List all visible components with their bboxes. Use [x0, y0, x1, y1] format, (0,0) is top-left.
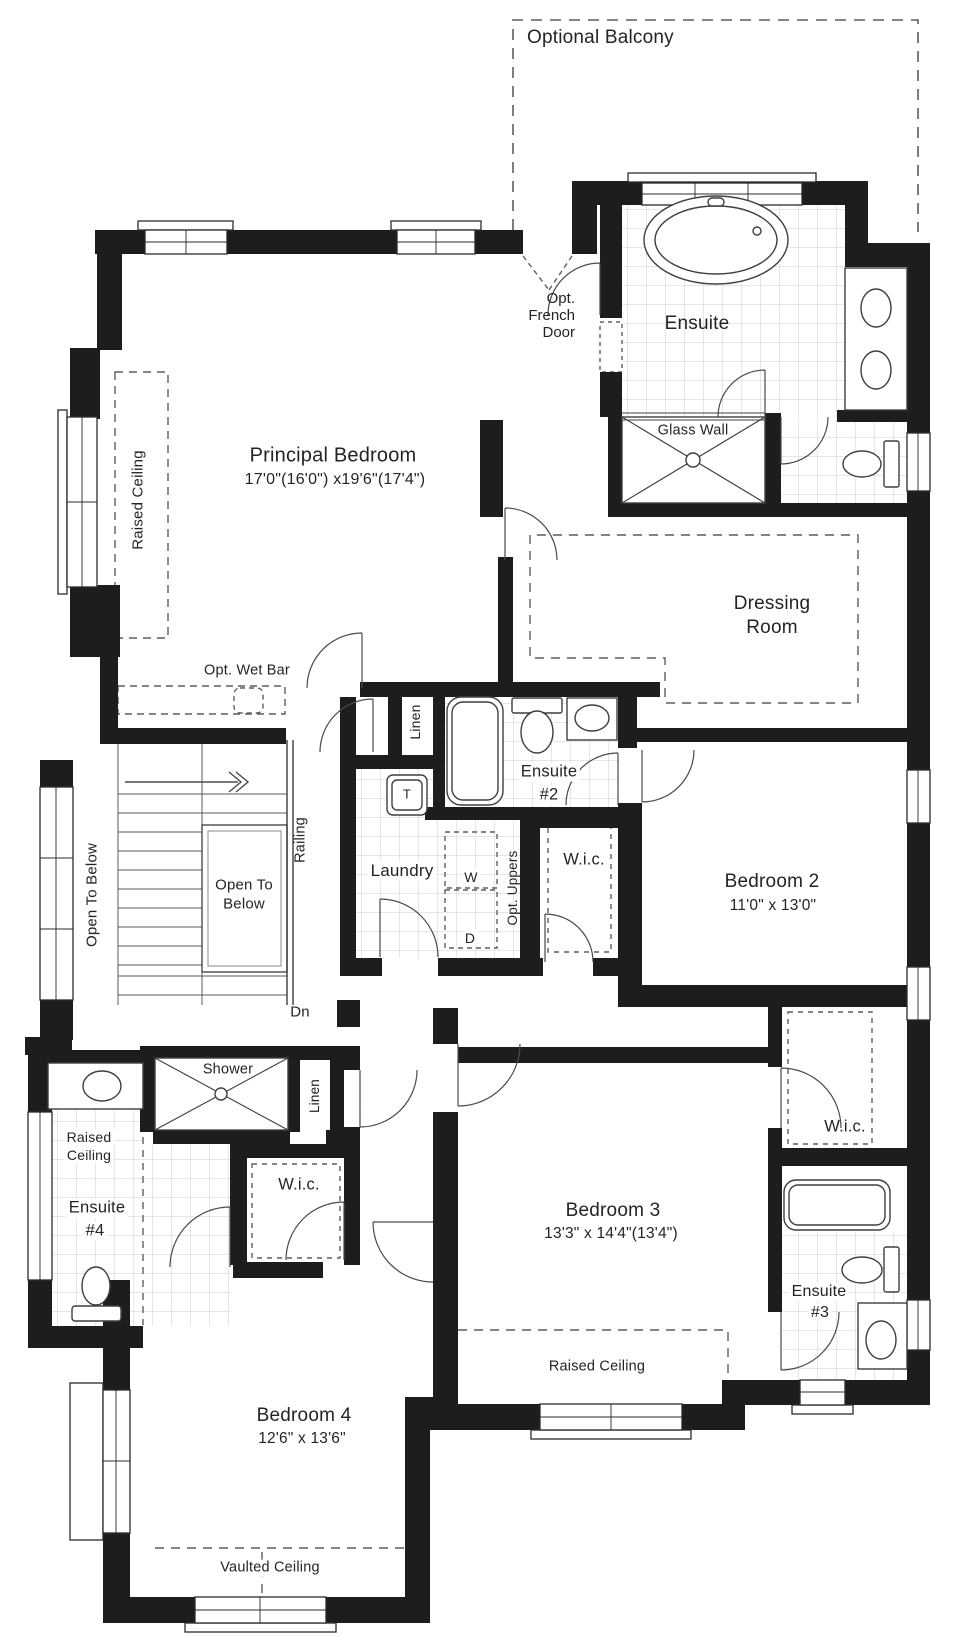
- ensuite3-tub: [784, 1180, 890, 1230]
- label-ensuite2-line2: #2: [537, 786, 562, 805]
- label-down: Dn: [290, 1003, 310, 1020]
- ensuite2-sink: [567, 698, 617, 740]
- label-optional-balcony: Optional Balcony: [527, 27, 674, 49]
- ensuite4-sink: [48, 1063, 143, 1109]
- label-laundry-tub: T: [403, 788, 411, 803]
- label-open-to-below-line1: Open To: [215, 876, 273, 893]
- soaker-tub: [644, 196, 788, 284]
- label-wic-bedroom4: W.i.c.: [278, 1176, 320, 1195]
- ensuite3-sink: [858, 1303, 907, 1369]
- wic2-shelving: [548, 827, 611, 952]
- label-ensuite-principal: Ensuite: [665, 313, 730, 335]
- label-washer: W: [461, 869, 480, 885]
- ensuite-opt-opening: [600, 322, 622, 372]
- label-vaulted-ceiling: Vaulted Ceiling: [217, 1560, 322, 1577]
- ensuite2-tub: [447, 697, 503, 805]
- label-bedroom2-dims: 11'0" x 13'0": [730, 897, 816, 915]
- label-opt-french-door-line3: Door: [528, 324, 575, 341]
- label-bedroom3: Bedroom 3: [566, 1200, 661, 1222]
- label-raised-ceiling-ensuite4-line2: Ceiling: [64, 1147, 114, 1163]
- double-vanity: [845, 268, 907, 410]
- label-ensuite2-line1: Ensuite: [518, 763, 580, 782]
- opt-wet-bar-sink: [234, 688, 263, 713]
- label-railing: Railing: [293, 817, 310, 863]
- label-opt-french-door-line2: French: [528, 307, 575, 324]
- label-opt-french-door-line1: Opt.: [528, 290, 575, 307]
- label-bedroom2: Bedroom 2: [725, 871, 820, 893]
- label-glass-wall: Glass Wall: [658, 423, 729, 440]
- opt-french-door-swing: [523, 256, 572, 290]
- label-ensuite4-line1: Ensuite: [66, 1199, 128, 1218]
- opt-wet-bar-counter: [118, 686, 285, 714]
- label-open-to-below-line2: Below: [223, 895, 265, 912]
- label-opt-french-door: Opt. French Door: [528, 290, 575, 341]
- label-principal-bedroom: Principal Bedroom: [250, 445, 417, 468]
- label-dressing-room-line2: Room: [746, 617, 797, 639]
- label-dryer: D: [462, 930, 478, 946]
- label-opt-uppers: Opt. Uppers: [505, 851, 521, 926]
- floorplan-drawing: [0, 0, 954, 1648]
- label-bedroom4: Bedroom 4: [257, 1405, 352, 1427]
- label-laundry: Laundry: [368, 861, 437, 881]
- label-ensuite4-line2: #4: [83, 1222, 108, 1241]
- label-raised-ceiling-bedroom3: Raised Ceiling: [546, 1359, 648, 1376]
- floor-plan: Optional Balcony Ensuite Glass Wall Opt.…: [0, 0, 954, 1648]
- dressing-room-outline: [530, 535, 858, 703]
- label-wic-bedroom2: W.i.c.: [563, 851, 605, 870]
- label-raised-ceiling-ensuite4-line1: Raised: [64, 1129, 115, 1145]
- label-linen-lower: Linen: [307, 1079, 323, 1113]
- label-ensuite3-line1: Ensuite: [789, 1283, 850, 1301]
- label-ensuite3-line2: #3: [808, 1304, 832, 1322]
- label-principal-bedroom-dims: 17'0"(16'0") x19'6"(17'4"): [245, 471, 426, 489]
- label-bedroom4-dims: 12'6" x 13'6": [258, 1430, 346, 1448]
- stairs-direction-arrow: [125, 772, 248, 792]
- label-opt-wet-bar: Opt. Wet Bar: [204, 663, 290, 680]
- label-wic-bedroom3: W.i.c.: [824, 1118, 866, 1137]
- label-raised-ceiling-principal: Raised Ceiling: [129, 450, 146, 550]
- label-linen-upper: Linen: [407, 704, 423, 739]
- stairs-open-to-below: [118, 740, 293, 1005]
- label-shower: Shower: [203, 1062, 253, 1079]
- label-open-to-below-side: Open To Below: [83, 843, 100, 947]
- label-bedroom3-dims: 13'3" x 14'4"(13'4"): [544, 1225, 678, 1243]
- label-dressing-room-line1: Dressing: [734, 593, 811, 615]
